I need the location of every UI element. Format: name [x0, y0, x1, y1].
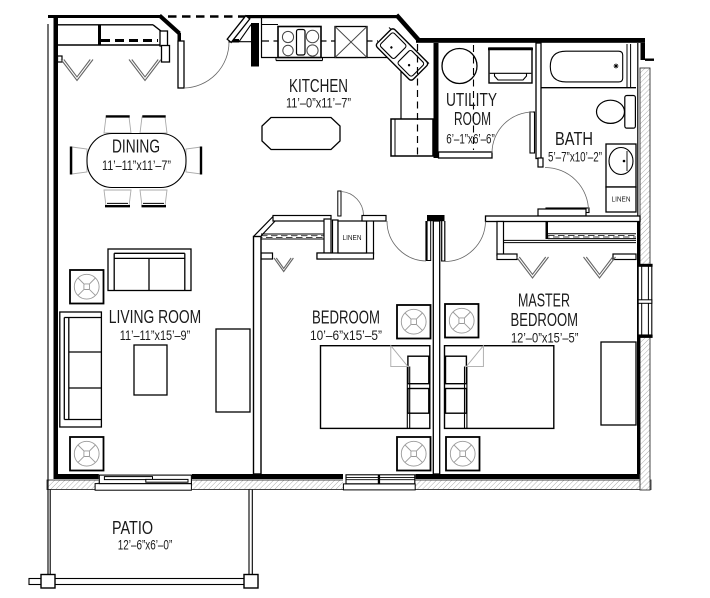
- svg-text:ROOM: ROOM: [454, 109, 491, 129]
- svg-text:MASTER: MASTER: [518, 291, 570, 311]
- svg-text:PATIO: PATIO: [112, 518, 153, 538]
- svg-text:12’–6”x6’–0”: 12’–6”x6’–0”: [118, 536, 173, 552]
- svg-text:10’–6”x15’–5”: 10’–6”x15’–5”: [310, 327, 382, 343]
- svg-text:DINING: DINING: [112, 137, 160, 157]
- svg-text:BEDROOM: BEDROOM: [312, 308, 380, 328]
- svg-text:5’–7”x10’–2”: 5’–7”x10’–2”: [548, 149, 602, 165]
- svg-text:KITCHEN: KITCHEN: [289, 76, 348, 96]
- svg-text:LINEN: LINEN: [343, 233, 362, 242]
- svg-text:12’–0”x15’–5”: 12’–0”x15’–5”: [511, 330, 579, 346]
- svg-text:BEDROOM: BEDROOM: [511, 310, 579, 330]
- svg-text:11’–11”x11’–7”: 11’–11”x11’–7”: [102, 157, 171, 173]
- svg-text:BATH: BATH: [555, 129, 593, 149]
- svg-text:LINEN: LINEN: [612, 195, 631, 204]
- svg-text:11’–0”x11’–7”: 11’–0”x11’–7”: [286, 95, 351, 111]
- svg-text:11’–11”x15’–9”: 11’–11”x15’–9”: [120, 327, 191, 343]
- svg-text:6’–1”x6’–6”: 6’–1”x6’–6”: [446, 131, 495, 147]
- svg-text:UTILITY: UTILITY: [446, 90, 497, 110]
- svg-text:LIVING ROOM: LIVING ROOM: [109, 307, 201, 327]
